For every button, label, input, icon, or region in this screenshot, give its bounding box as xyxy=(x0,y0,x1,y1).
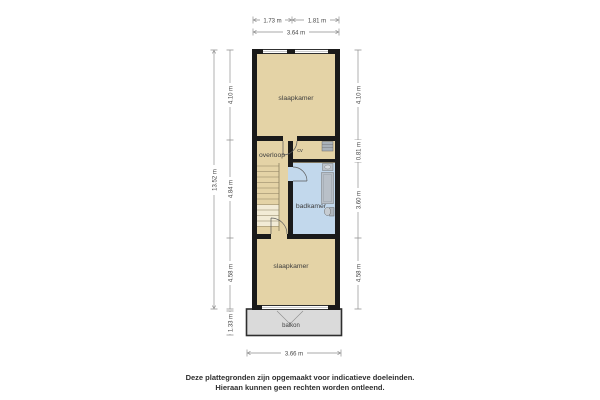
label-balcony: balkon xyxy=(282,323,300,329)
dim-left-bottom-label: 4.58 m xyxy=(228,264,234,282)
dim-bottom-total-label: 3.66 m xyxy=(285,351,303,357)
dim-top-total-label: 3.64 m xyxy=(287,30,305,36)
wall-cv-bathroom xyxy=(293,159,335,163)
wall-interior-2 xyxy=(257,234,335,239)
wall-right xyxy=(335,49,340,310)
opening-bedroom-top xyxy=(283,136,297,141)
dim-top-left-label: 1.73 m xyxy=(263,18,281,24)
dim-left-middle-label: 4.84 m xyxy=(228,180,234,198)
opening-bathroom xyxy=(288,167,293,181)
dim-left-balcony-label: 1.33 m xyxy=(228,314,234,332)
sink-basin xyxy=(325,165,331,169)
dim-right-cv-label: 0.81 m xyxy=(356,142,362,160)
dim-left-total-label: 13.52 m xyxy=(212,169,218,191)
room-bedroom-bottom xyxy=(257,239,335,305)
wall-left xyxy=(252,49,257,310)
label-bedroom-bottom: slaapkamer xyxy=(273,263,309,270)
disclaimer: Deze plattegronden zijn opgemaakt voor i… xyxy=(0,373,600,393)
dim-left-top-label: 4.10 m xyxy=(228,86,234,104)
floorplan-svg: slaapkamer overloop cv badkamer slaapkam… xyxy=(0,0,600,400)
cv-boiler-icon xyxy=(322,142,333,152)
dim-right-bathroom-label: 3.60 m xyxy=(356,191,362,209)
disclaimer-line2: Hieraan kunnen geen rechten worden ontle… xyxy=(0,383,600,393)
dim-right-bottom-label: 4.58 m xyxy=(356,264,362,282)
label-bedroom-top: slaapkamer xyxy=(278,95,314,102)
label-bathroom: badkamer xyxy=(296,203,327,210)
label-cv: cv xyxy=(297,148,303,154)
disclaimer-line1: Deze plattegronden zijn opgemaakt voor i… xyxy=(0,373,600,383)
opening-bedroom-bottom xyxy=(271,234,287,239)
wall-landing-bathroom xyxy=(288,141,293,238)
label-landing: overloop xyxy=(259,152,285,159)
dim-right-top-label: 4.10 m xyxy=(356,86,362,104)
dim-top-right-label: 1.81 m xyxy=(308,18,326,24)
floorplan-page: slaapkamer overloop cv badkamer slaapkam… xyxy=(0,0,600,400)
